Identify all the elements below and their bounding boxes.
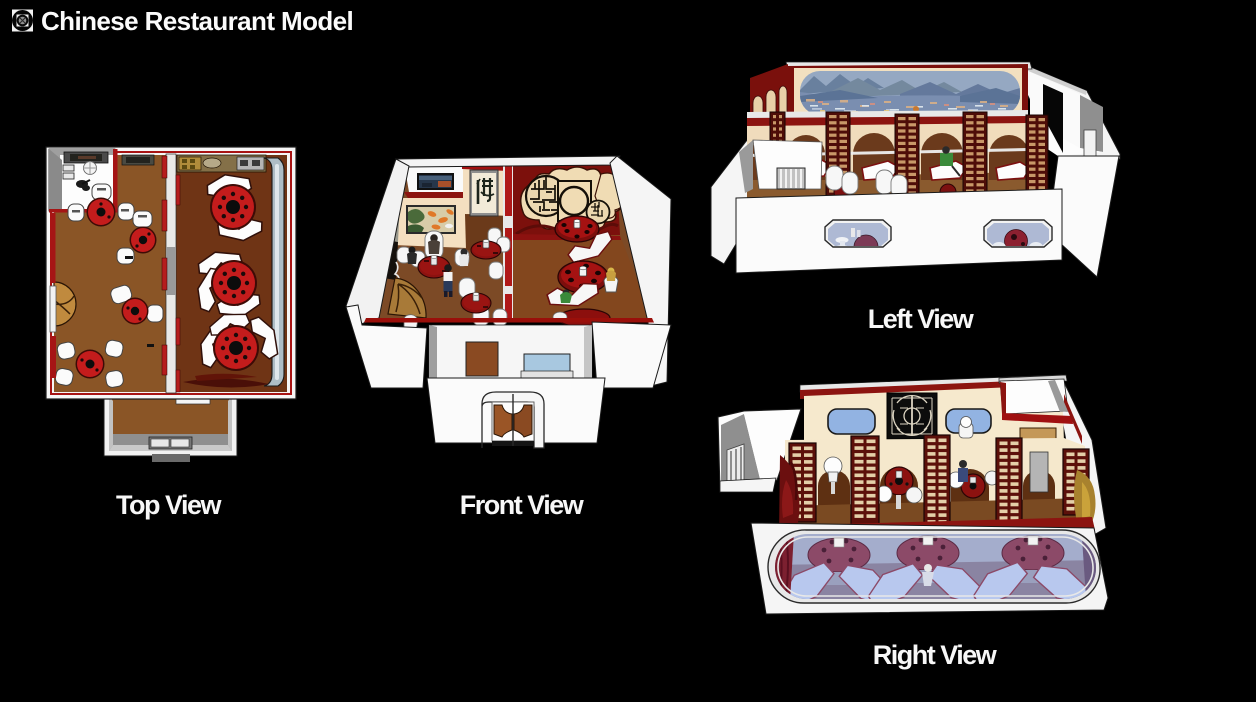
svg-text:Right View: Right View (873, 640, 998, 670)
svg-text:Left View: Left View (868, 304, 975, 334)
svg-text:Chinese Restaurant Model: Chinese Restaurant Model (41, 6, 353, 36)
svg-text:Top View: Top View (116, 490, 223, 520)
svg-text:Front View: Front View (460, 490, 585, 520)
